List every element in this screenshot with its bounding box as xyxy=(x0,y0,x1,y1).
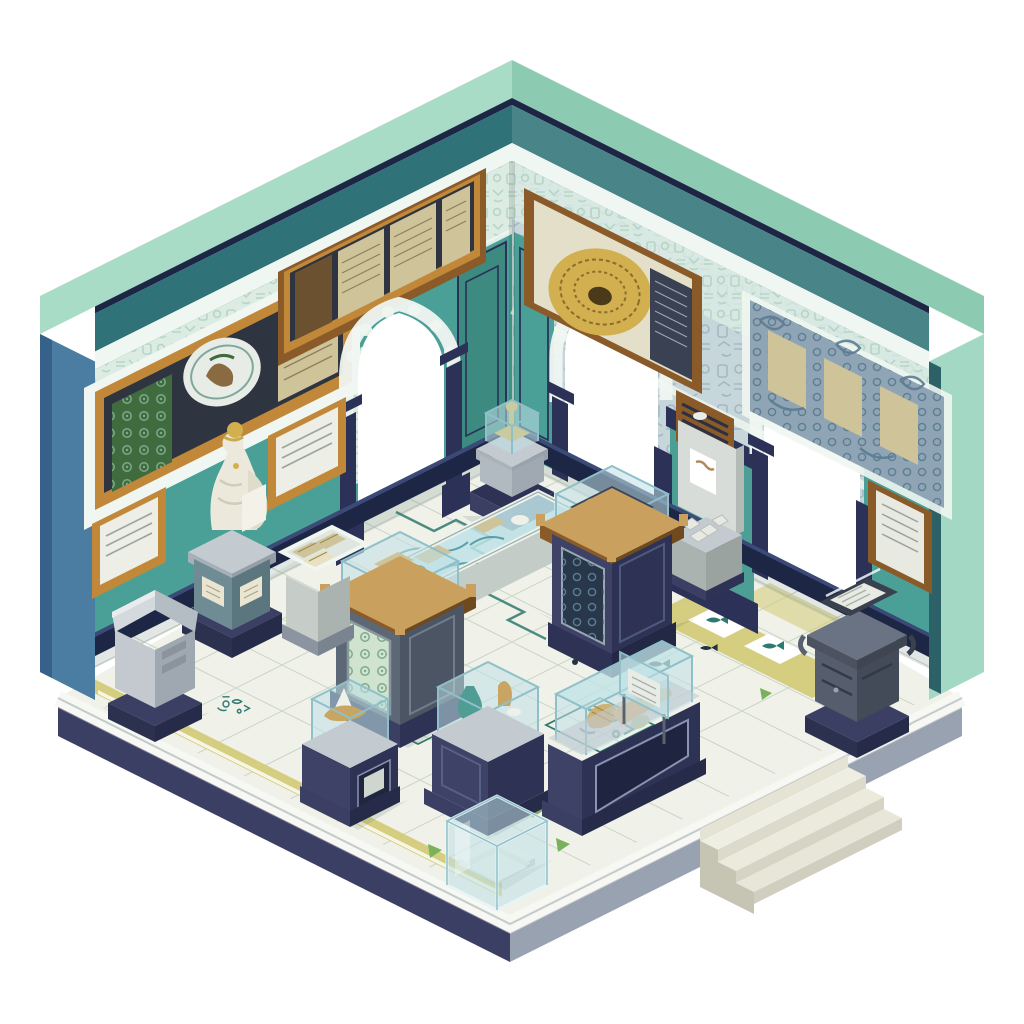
manuscript-case xyxy=(447,796,547,910)
museum-illustration xyxy=(0,0,1024,1024)
boat-model-vitrine xyxy=(300,680,400,827)
isometric-scene xyxy=(0,0,1024,1024)
